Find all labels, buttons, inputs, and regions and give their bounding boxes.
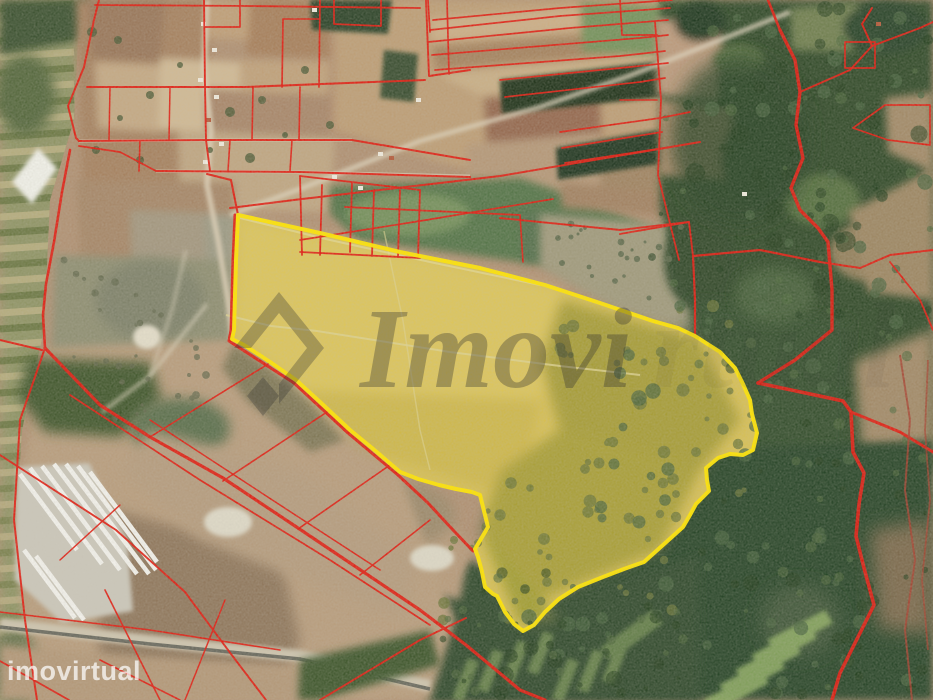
svg-text:rtual: rtual [652, 279, 896, 414]
svg-text:Imovi: Imovi [358, 285, 633, 412]
svg-text:imovirtual: imovirtual [7, 656, 141, 686]
